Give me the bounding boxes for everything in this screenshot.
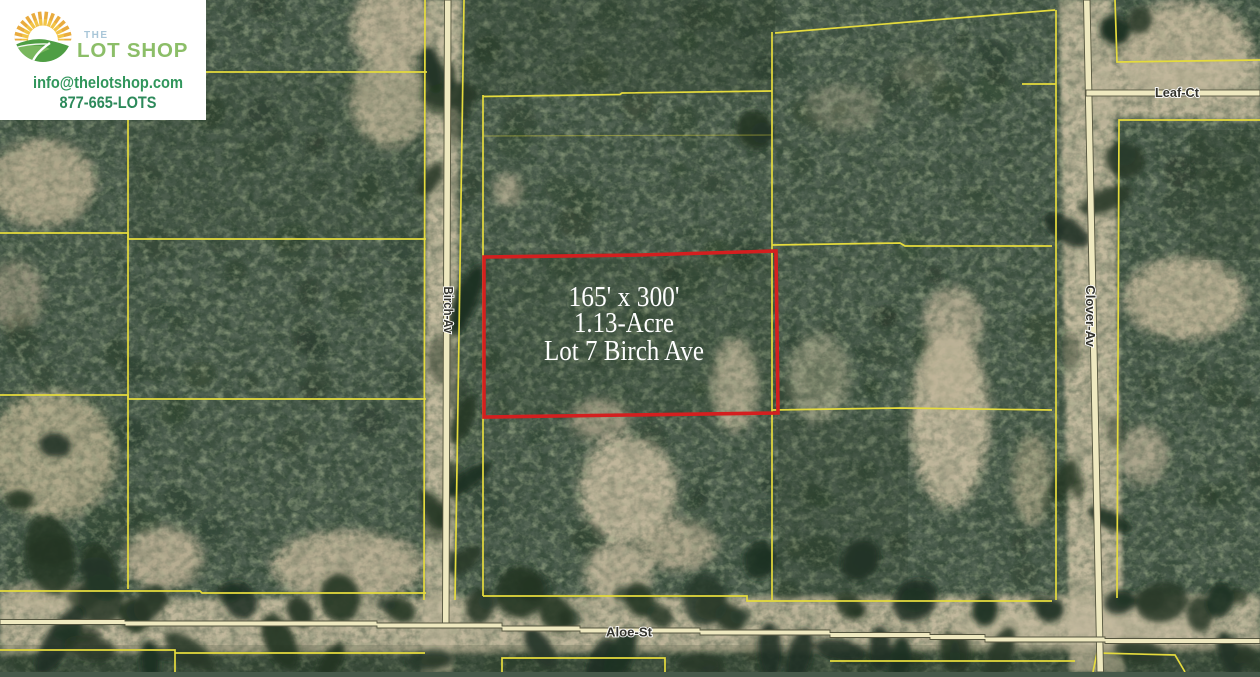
svg-text:877-665-LOTS: 877-665-LOTS	[60, 94, 157, 112]
svg-text:Clover-Av: Clover-Av	[1083, 285, 1098, 347]
svg-text:Lot 7 Birch Ave: Lot 7 Birch Ave	[544, 336, 704, 367]
svg-text:Leaf-Ct: Leaf-Ct	[1155, 86, 1200, 100]
svg-text:Birch-Av: Birch-Av	[441, 287, 456, 335]
svg-text:1.13-Acre: 1.13-Acre	[574, 308, 674, 339]
svg-text:Aloe-St: Aloe-St	[606, 625, 653, 640]
svg-text:LOT SHOP: LOT SHOP	[77, 39, 188, 62]
svg-text:info@thelotshop.com: info@thelotshop.com	[33, 74, 183, 92]
